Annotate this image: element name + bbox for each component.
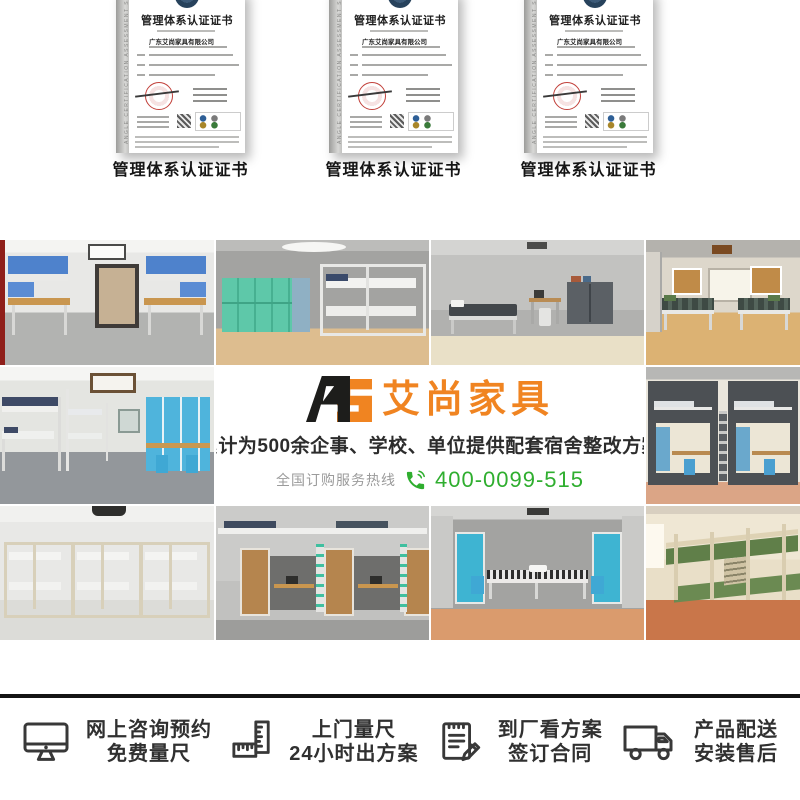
certifier-seal-icon [175, 0, 199, 8]
certifier-seal-icon [388, 0, 412, 8]
service-text: 上门量尺 24小时出方案 [289, 718, 418, 766]
services-section: 网上咨询预约 免费量尺 上门量尺 24小时出方案 [0, 702, 800, 782]
brand-banner: 艾尚家具 累计为500余企事、学校、单位提供配套宿舍整改方案 全国订购服务热线 … [216, 367, 644, 504]
certificate-title: 管理体系认证证书 [342, 12, 458, 28]
gallery-section: 艾尚家具 累计为500余企事、学校、单位提供配套宿舍整改方案 全国订购服务热线 … [0, 240, 800, 640]
service-item-sign-contract: 到厂看方案 签订合同 [438, 718, 603, 766]
gallery-photo-lockers-and-bunk [216, 240, 429, 365]
monitor-icon [22, 720, 70, 764]
certifier-seal-icon [583, 0, 607, 8]
certificate-spine: ANGLE CERTIFICATION ASSESSMENT SERVICES [116, 0, 129, 153]
certificate-3: ANGLE CERTIFICATION ASSESSMENT SERVICES … [524, 0, 653, 153]
gallery-photo-single-bed-room [431, 240, 644, 365]
service-line1: 上门量尺 [289, 718, 418, 742]
service-line1: 网上咨询预约 [86, 718, 212, 742]
gallery-photo-wood-wardrobe-dorm [646, 240, 800, 365]
service-line2: 24小时出方案 [289, 742, 418, 766]
certificate-spine: ANGLE CERTIFICATION ASSESSMENT SERVICES [524, 0, 537, 153]
gallery-photo-bunks-blue-wardrobes [0, 367, 214, 504]
service-line2: 免费量尺 [86, 742, 212, 766]
certificate-company: 广东艾尚家具有限公司 [362, 36, 427, 46]
certificate-company: 广东艾尚家具有限公司 [557, 36, 622, 46]
logo-letter-a [306, 376, 350, 422]
accreditation-badges-icon [603, 112, 649, 131]
brand-logo-icon [306, 376, 372, 422]
qr-code-icon [177, 114, 191, 128]
gallery-photo-blue-loft-bed-dorm [0, 240, 214, 365]
certificate-image: ANGLE CERTIFICATION ASSESSMENT SERVICES … [116, 0, 245, 153]
service-text: 到厂看方案 签订合同 [498, 718, 603, 766]
section-divider [0, 694, 800, 698]
brand-name: 艾尚家具 [382, 378, 554, 422]
qr-code-icon [390, 114, 404, 128]
phone-icon [404, 469, 427, 492]
hotline-number: 400-0099-515 [435, 467, 584, 493]
service-item-onsite-measure: 上门量尺 24小时出方案 [231, 718, 418, 766]
certificate-2: ANGLE CERTIFICATION ASSESSMENT SERVICES … [329, 0, 458, 153]
red-company-seal-icon [553, 82, 581, 110]
gallery-photo-twin-beds-teal-doors [431, 506, 644, 640]
contract-icon [438, 719, 482, 765]
service-line2: 安装售后 [694, 742, 778, 766]
certificate-title: 管理体系认证证书 [129, 12, 245, 28]
certificate-company: 广东艾尚家具有限公司 [149, 36, 214, 46]
red-company-seal-icon [358, 82, 386, 110]
service-line2: 签订合同 [498, 742, 603, 766]
certificate-face: 管理体系认证证书 广东艾尚家具有限公司 [129, 0, 245, 153]
service-item-delivery-install: 产品配送 安装售后 [622, 718, 778, 766]
certificate-image: ANGLE CERTIFICATION ASSESSMENT SERVICES … [329, 0, 458, 153]
service-item-online-consult: 网上咨询预约 免费量尺 [22, 718, 212, 766]
page: ANGLE CERTIFICATION ASSESSMENT SERVICES … [0, 0, 800, 800]
hotline-row: 全国订购服务热线 400-0099-515 [276, 467, 584, 493]
certificate-title: 管理体系认证证书 [537, 12, 653, 28]
banner-tagline: 累计为500余企事、学校、单位提供配套宿舍整改方案 [216, 431, 644, 458]
certificate-1: ANGLE CERTIFICATION ASSESSMENT SERVICES … [116, 0, 245, 153]
hotline-label: 全国订购服务热线 [276, 470, 396, 490]
red-company-seal-icon [145, 82, 173, 110]
accreditation-badges-icon [408, 112, 454, 131]
service-line1: 产品配送 [694, 718, 778, 742]
gallery-photo-dark-loft-apartments [646, 367, 800, 504]
certificate-spine: ANGLE CERTIFICATION ASSESSMENT SERVICES [329, 0, 342, 153]
ruler-icon [231, 719, 273, 765]
service-text: 网上咨询预约 免费量尺 [86, 718, 212, 766]
qr-code-icon [585, 114, 599, 128]
truck-icon [622, 721, 678, 763]
certificate-caption: 管理体系认证证书 [325, 156, 461, 180]
certificate-image: ANGLE CERTIFICATION ASSESSMENT SERVICES … [524, 0, 653, 153]
service-line1: 到厂看方案 [498, 718, 603, 742]
gallery-photo-green-steel-bunks [646, 506, 800, 640]
certificate-face: 管理体系认证证书 广东艾尚家具有限公司 [537, 0, 653, 153]
brand-logo: 艾尚家具 [306, 374, 554, 422]
accreditation-badges-icon [195, 112, 241, 131]
certificate-caption: 管理体系认证证书 [520, 156, 656, 180]
gallery-photo-cream-bunk-beds [0, 506, 214, 640]
certificate-face: 管理体系认证证书 广东艾尚家具有限公司 [342, 0, 458, 153]
certificate-caption: 管理体系认证证书 [112, 156, 248, 180]
gallery-photo-loft-desk-combos [216, 506, 429, 640]
service-text: 产品配送 安装售后 [694, 718, 778, 766]
